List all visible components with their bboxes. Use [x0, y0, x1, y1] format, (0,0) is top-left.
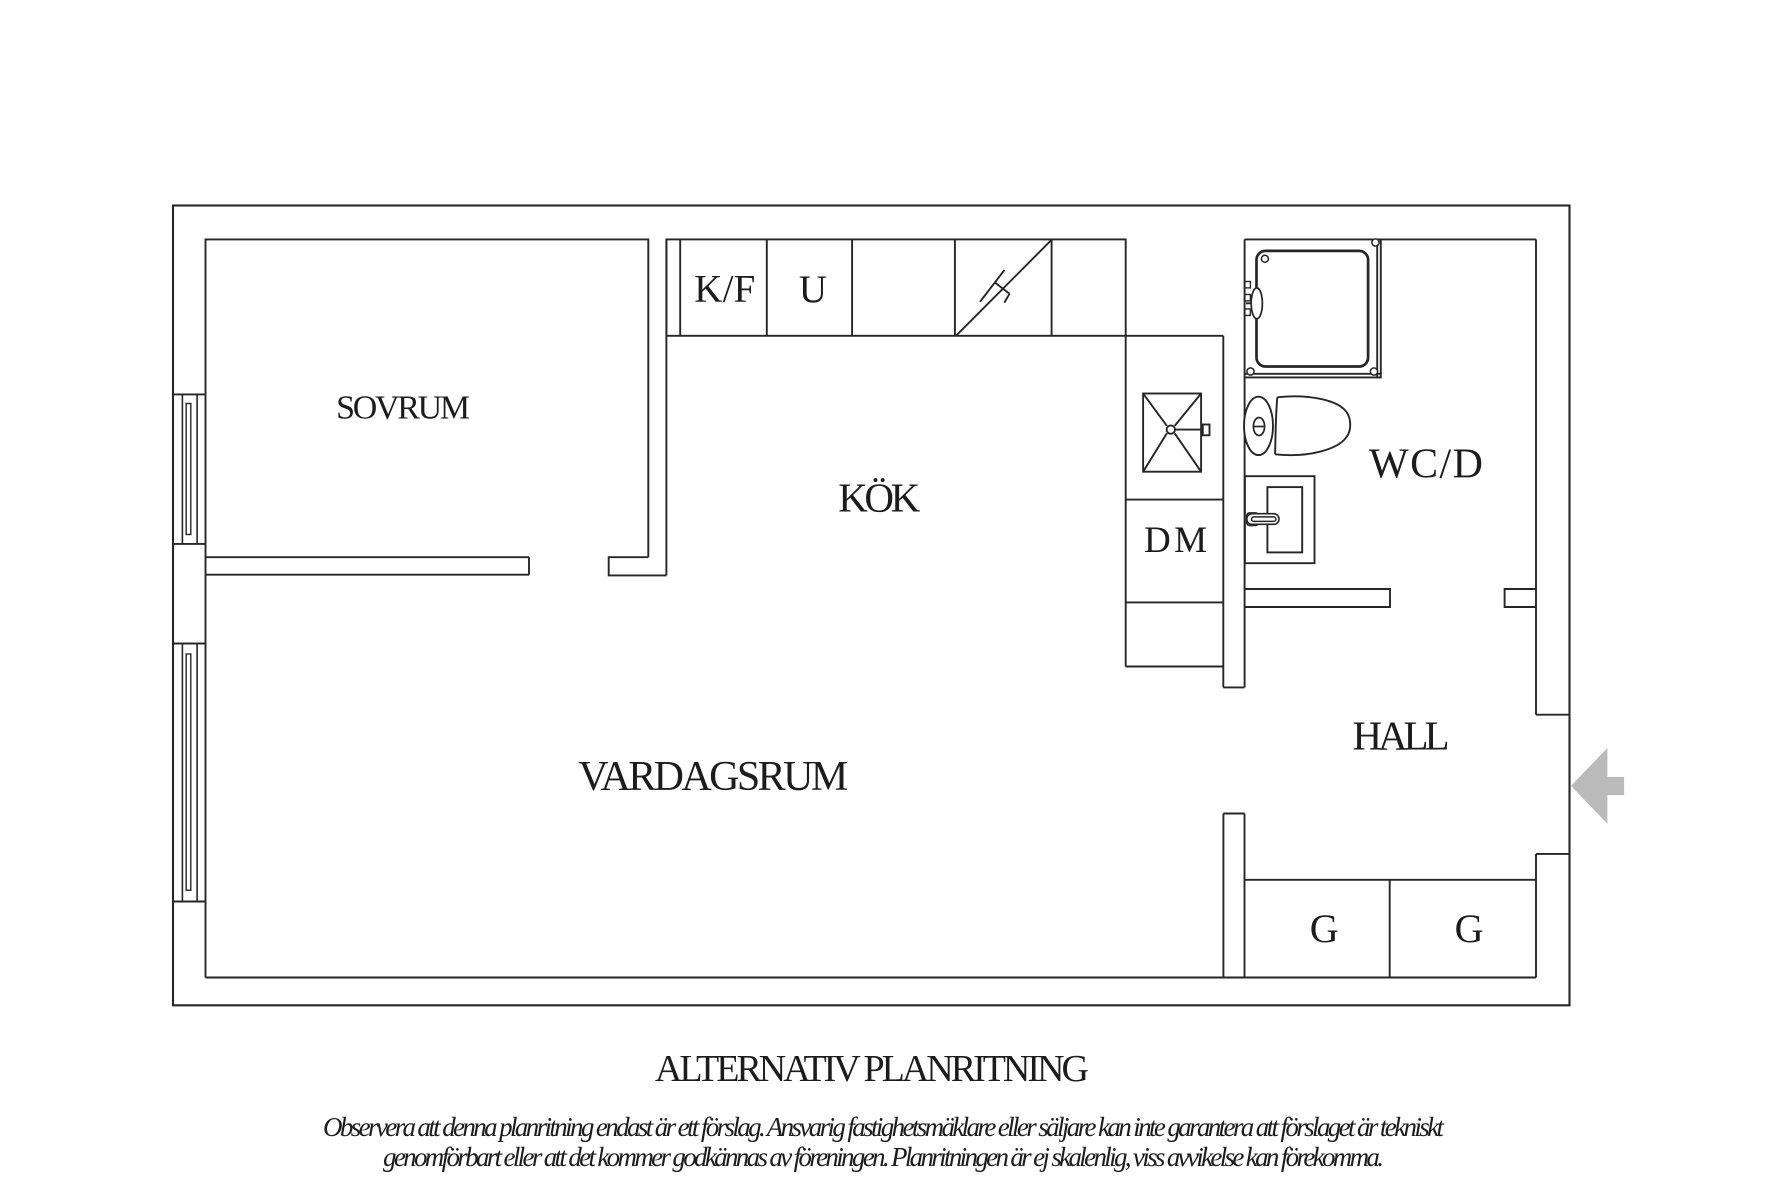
- svg-text:U: U: [799, 268, 827, 311]
- svg-text:VARDAGSRUM: VARDAGSRUM: [578, 754, 848, 800]
- svg-text:SOVRUM: SOVRUM: [336, 390, 470, 427]
- svg-text:ALTERNATIV PLANRITNING: ALTERNATIV PLANRITNING: [655, 1048, 1089, 1090]
- svg-text:G: G: [1310, 906, 1339, 951]
- svg-text:DM: DM: [1144, 520, 1207, 561]
- svg-text:KÖK: KÖK: [838, 475, 920, 521]
- svg-text:Observera att denna planritnin: Observera att denna planritning endast ä…: [323, 1112, 1445, 1142]
- svg-text:G: G: [1455, 906, 1484, 951]
- svg-text:WC/D: WC/D: [1369, 442, 1483, 488]
- svg-text:genomförbart eller att det kom: genomförbart eller att det kommer godkän…: [383, 1142, 1384, 1172]
- svg-text:K/F: K/F: [694, 268, 755, 311]
- svg-text:HALL: HALL: [1353, 713, 1450, 759]
